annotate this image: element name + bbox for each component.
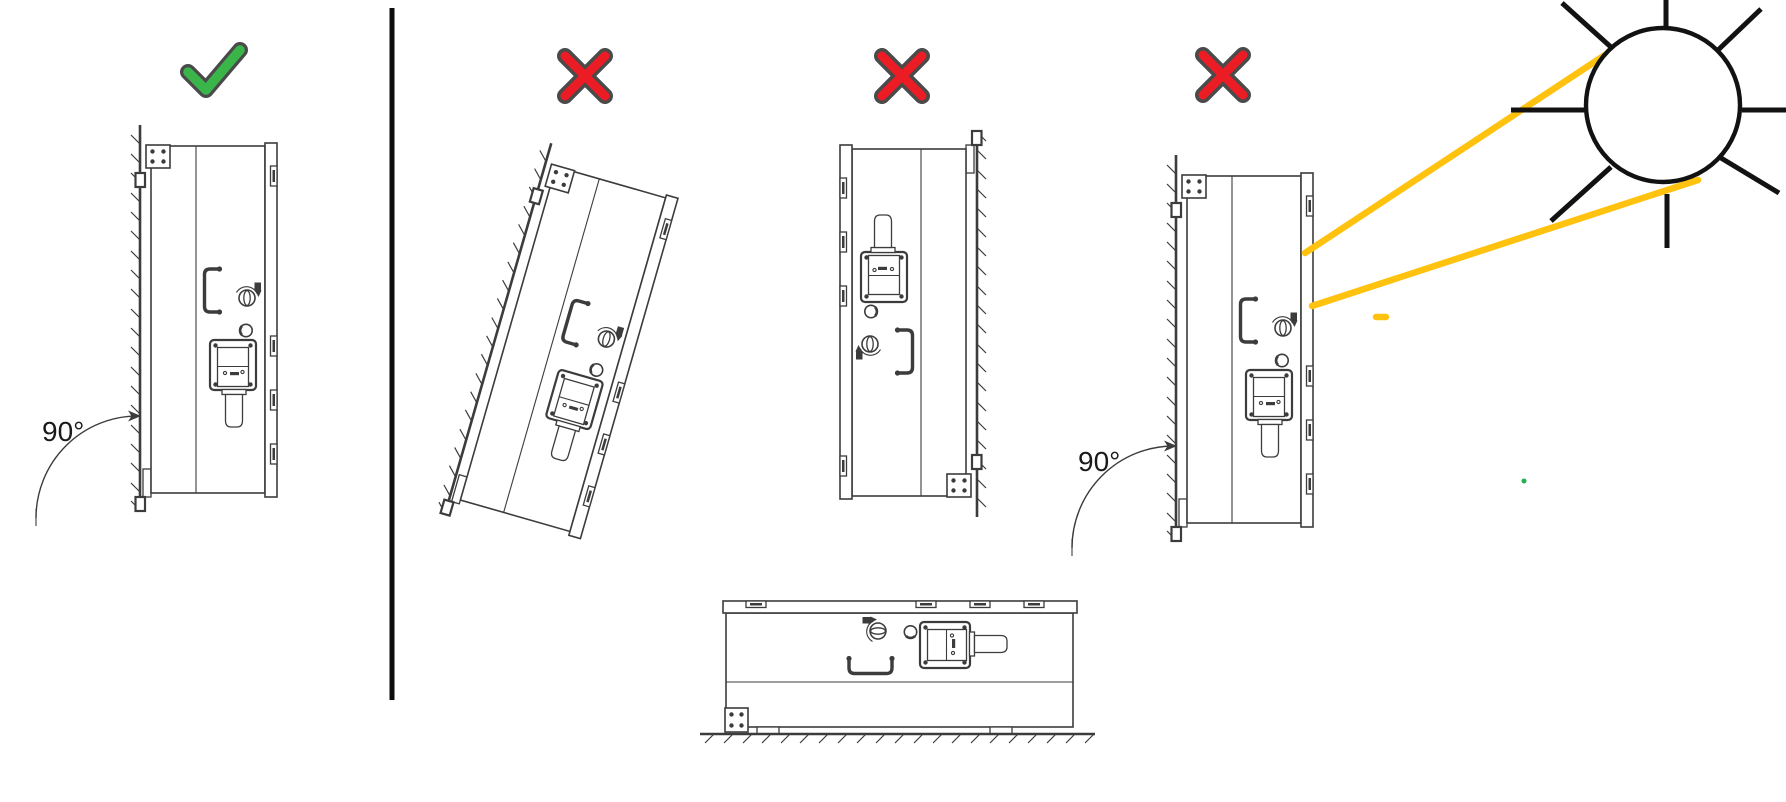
angle-label: 90° bbox=[1078, 446, 1120, 477]
angle-annotation: 90° bbox=[1072, 441, 1177, 557]
figure-horizontal-floor-mount bbox=[700, 601, 1095, 743]
checkmark-icon bbox=[188, 50, 240, 90]
sun-icon bbox=[1511, 0, 1786, 248]
stray-green-dot bbox=[1522, 479, 1527, 484]
unit-upside-down bbox=[840, 131, 986, 517]
ground bbox=[700, 734, 1095, 743]
figure-upside-down-mount bbox=[840, 56, 986, 517]
figure-correct-vertical-mount: 90° bbox=[36, 50, 277, 526]
x-mark-icon bbox=[882, 56, 922, 96]
unit-tilted bbox=[436, 141, 683, 552]
unit-upright bbox=[131, 125, 277, 511]
installation-orientation-diagram: 90° 90° bbox=[0, 0, 1786, 802]
figure-direct-sunlight-mount: 90° bbox=[1072, 55, 1313, 556]
unit-in-sunlight bbox=[1167, 155, 1313, 541]
diagram-canvas: 90° 90° bbox=[0, 0, 1786, 802]
angle-annotation: 90° bbox=[36, 411, 141, 527]
x-mark-icon bbox=[565, 56, 605, 96]
x-mark-icon bbox=[1203, 55, 1243, 95]
sunbeam-lower bbox=[1312, 180, 1698, 306]
figure-tilted-mount bbox=[436, 56, 683, 552]
unit-horizontal bbox=[723, 601, 1077, 732]
angle-label: 90° bbox=[42, 416, 84, 447]
ground-hatching bbox=[705, 734, 1094, 743]
